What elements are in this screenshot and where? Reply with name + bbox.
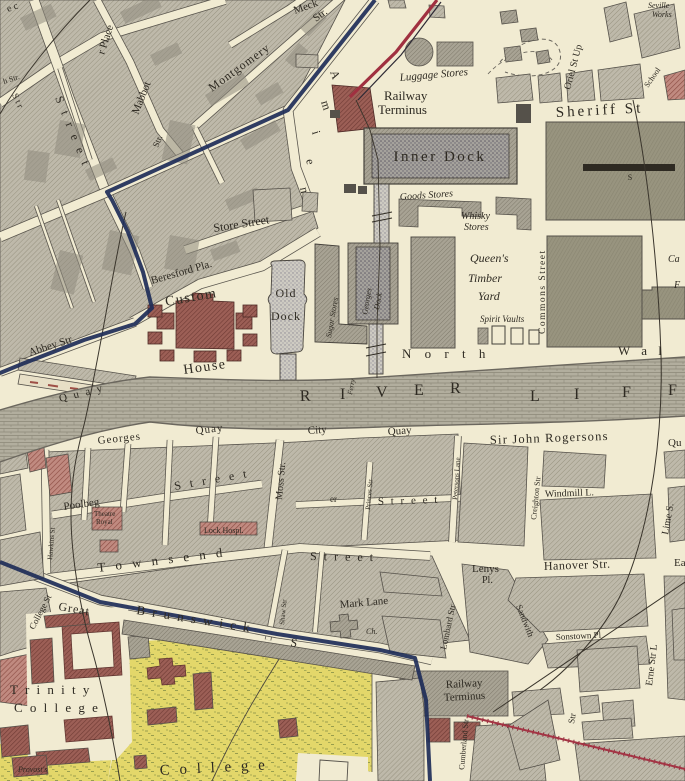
svg-text:Ea: Ea [674,557,685,569]
svg-text:F: F [622,384,631,401]
svg-text:Terminus: Terminus [444,690,486,704]
svg-text:Ch.: Ch. [366,627,377,636]
svg-text:Spirit Vaults: Spirit Vaults [480,314,525,324]
svg-text:Ca: Ca [668,254,680,265]
svg-text:V: V [376,384,388,401]
svg-text:S t r e e t: S t r e e t [310,549,375,564]
svg-text:C o l l e g e: C o l l e g e [14,700,100,715]
svg-text:Dock: Dock [271,309,301,323]
svg-text:Terminus: Terminus [378,102,427,117]
svg-text:Pl.: Pl. [482,575,493,586]
svg-text:I: I [574,386,579,403]
svg-text:Commons Street: Commons Street [538,249,548,334]
svg-text:Queen's: Queen's [470,251,509,265]
svg-text:Lenys: Lenys [472,563,499,575]
svg-text:Railway: Railway [384,88,428,103]
svg-text:Qu: Qu [668,437,682,449]
svg-text:I: I [340,386,345,403]
svg-text:W a l: W a l [618,343,666,358]
svg-text:er: er [330,494,337,504]
svg-text:F: F [668,382,677,399]
svg-text:Stores: Stores [464,222,489,233]
svg-text:F: F [673,280,681,291]
svg-text:L: L [530,388,540,405]
svg-text:Timber: Timber [468,271,502,285]
svg-text:Theatre: Theatre [94,510,115,518]
svg-text:R: R [450,380,461,397]
svg-text:S t r e e t: S t r e e t [378,494,440,508]
svg-text:Provost's: Provost's [17,765,47,774]
svg-text:Royal: Royal [96,518,113,526]
svg-text:Whisky: Whisky [461,211,490,222]
svg-text:Railway: Railway [446,677,484,691]
svg-text:Old: Old [276,286,297,300]
svg-text:S: S [628,173,632,182]
svg-text:R: R [300,388,313,405]
svg-text:N o r t h: N o r t h [402,346,490,361]
svg-text:E: E [414,382,424,399]
svg-text:Inner Dock: Inner Dock [394,149,487,165]
svg-text:Windmill L.: Windmill L. [545,487,594,500]
svg-text:Lock Hospl.: Lock Hospl. [204,526,244,535]
svg-text:Hanover Str.: Hanover Str. [544,557,611,573]
svg-text:Seville: Seville [648,1,670,10]
svg-text:City: City [307,424,327,437]
svg-text:Str: Str [566,712,578,724]
svg-text:Quay: Quay [387,424,412,438]
svg-text:Yard: Yard [478,289,501,303]
svg-text:T r i n i t y: T r i n i t y [10,682,91,697]
svg-text:Works: Works [652,10,672,19]
